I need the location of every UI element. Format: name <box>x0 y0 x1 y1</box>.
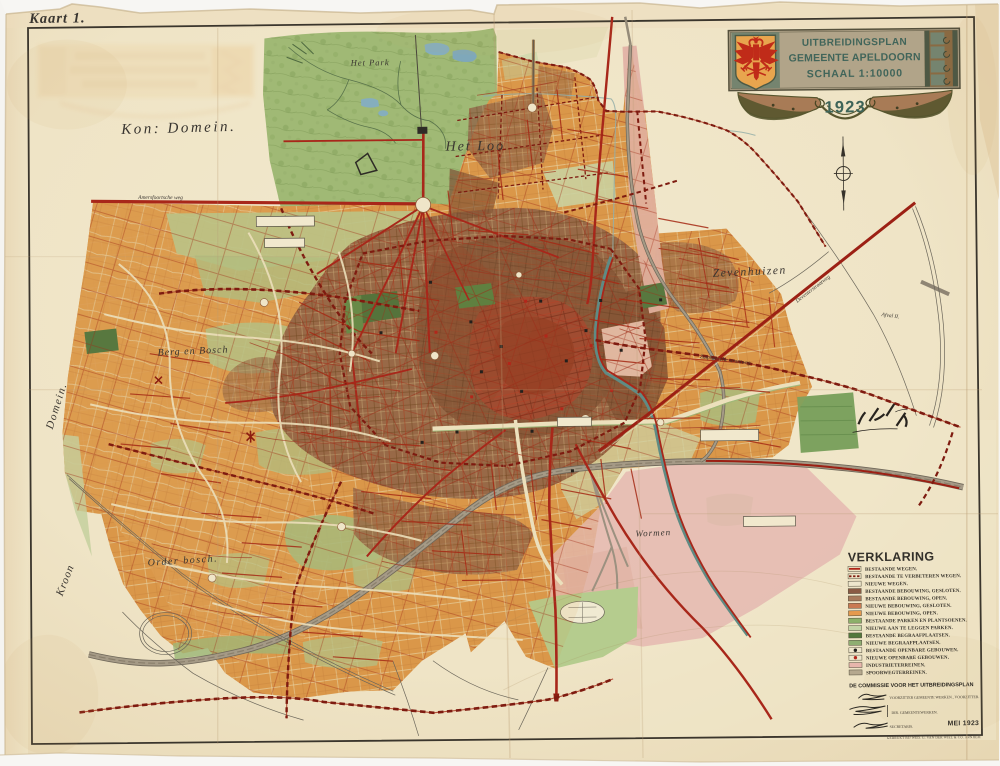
svg-text:SCHAAL 1:10000: SCHAAL 1:10000 <box>807 67 903 80</box>
svg-text:Het Park: Het Park <box>350 57 390 67</box>
svg-text:NIEUWE BEBOUWING, OPEN.: NIEUWE BEBOUWING, OPEN. <box>865 611 937 617</box>
svg-text:MEI 1923: MEI 1923 <box>948 720 980 727</box>
svg-text:1923: 1923 <box>824 98 866 116</box>
svg-text:VERKLARING: VERKLARING <box>848 550 935 565</box>
svg-text:Kon: Domein.: Kon: Domein. <box>120 119 236 138</box>
svg-text:Wormen: Wormen <box>635 527 671 539</box>
svg-text:NIEUWE BEBOUWING, GESLOTEN.: NIEUWE BEBOUWING, GESLOTEN. <box>865 604 951 610</box>
svg-text:NIEUWE WEGEN.: NIEUWE WEGEN. <box>865 582 908 587</box>
svg-text:BESTAANDE BEGRAAFPLAATSEN.: BESTAANDE BEGRAAFPLAATSEN. <box>866 633 950 639</box>
svg-text:INDUSTRIETERREINEN.: INDUSTRIETERREINEN. <box>866 663 925 669</box>
svg-text:BESTAANDE OPENBARE GEBOUWEN.: BESTAANDE OPENBARE GEBOUWEN. <box>866 648 959 654</box>
svg-text:BESTAANDE BEBOUWING, OPEN.: BESTAANDE BEBOUWING, OPEN. <box>865 596 947 602</box>
svg-text:SECRETARIS.: SECRETARIS. <box>890 725 914 729</box>
svg-text:BESTAANDE WEGEN.: BESTAANDE WEGEN. <box>865 567 917 573</box>
svg-text:BESTAANDE PARKEN EN PLANTSOENE: BESTAANDE PARKEN EN PLANTSOENEN. <box>866 618 967 624</box>
svg-text:UITBREIDINGSPLAN: UITBREIDINGSPLAN <box>802 37 907 49</box>
svg-text:Kaart 1.: Kaart 1. <box>28 10 86 27</box>
svg-text:Amersfoortsche weg: Amersfoortsche weg <box>137 194 183 201</box>
svg-text:BESTAANDE TE VERBETEREN WEGEN.: BESTAANDE TE VERBETEREN WEGEN. <box>865 574 961 580</box>
svg-text:GEMEENTE APELDOORN: GEMEENTE APELDOORN <box>789 51 921 64</box>
svg-text:BESTAANDE BEBOUWING, GESLOTEN.: BESTAANDE BEBOUWING, GESLOTEN. <box>865 589 961 595</box>
svg-text:NIEUWE AAN TE LEGGEN PARKEN.: NIEUWE AAN TE LEGGEN PARKEN. <box>866 626 953 632</box>
svg-text:DIR. GEMEENTEWERKEN.: DIR. GEMEENTEWERKEN. <box>891 710 937 714</box>
svg-text:SPOORWEGTERREINEN.: SPOORWEGTERREINEN. <box>866 671 927 677</box>
svg-text:NIEUWE BEGRAAFPLAATSEN.: NIEUWE BEGRAAFPLAATSEN. <box>866 641 941 647</box>
svg-text:NIEUWE OPENBARE GEBOUWEN.: NIEUWE OPENBARE GEBOUWEN. <box>866 656 949 662</box>
